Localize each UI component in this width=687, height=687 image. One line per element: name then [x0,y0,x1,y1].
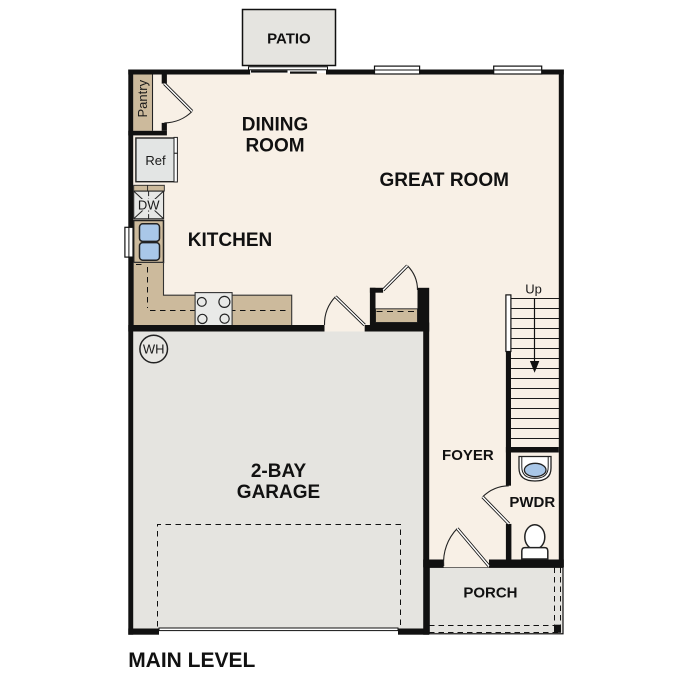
svg-text:ROOM: ROOM [245,135,304,156]
svg-text:2-BAY: 2-BAY [251,461,307,482]
svg-text:Up: Up [525,282,542,297]
svg-text:WH: WH [143,342,165,357]
svg-text:DINING: DINING [242,114,309,135]
svg-text:Ref: Ref [145,153,166,168]
svg-text:PWDR: PWDR [509,494,555,511]
svg-text:PORCH: PORCH [463,585,517,602]
svg-text:Pantry: Pantry [135,79,150,117]
svg-text:MAIN LEVEL: MAIN LEVEL [128,649,255,672]
svg-text:GREAT ROOM: GREAT ROOM [379,170,508,191]
svg-text:GARAGE: GARAGE [237,482,320,503]
svg-text:KITCHEN: KITCHEN [188,230,272,251]
svg-text:FOYER: FOYER [442,447,494,464]
svg-text:PATIO: PATIO [267,31,311,48]
svg-text:DW: DW [138,197,160,212]
